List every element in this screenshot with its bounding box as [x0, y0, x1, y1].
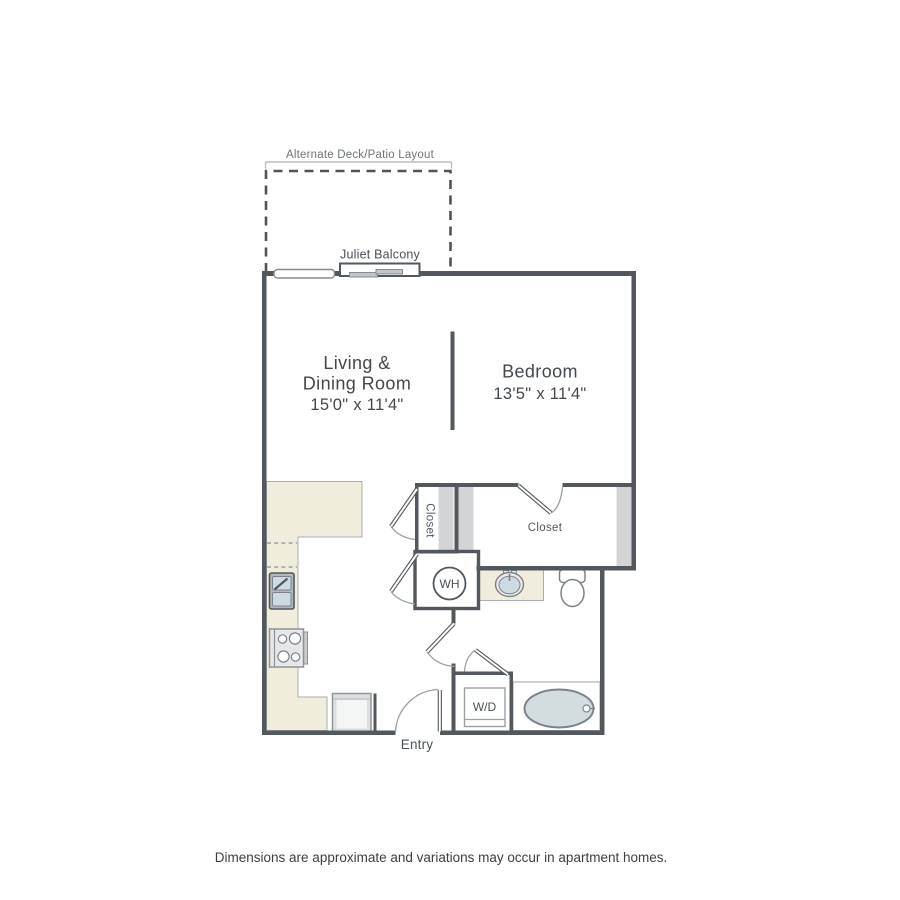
wall-right-upper [632, 271, 637, 571]
living-room-label-line1: Living & [323, 353, 390, 373]
wall-bathroom-top [477, 566, 637, 571]
bedroom-dimensions: 13'5" x 11'4" [493, 385, 586, 403]
wall-left [262, 271, 267, 735]
bathtub-icon [513, 682, 600, 731]
wall-wd-closet-right [510, 672, 514, 736]
toilet-icon [560, 570, 586, 607]
water-heater-label: WH [440, 577, 460, 591]
kitchen-sink-icon [270, 573, 295, 609]
alternate-deck-label: Alternate Deck/Patio Layout [286, 149, 435, 161]
small-closet-shelf [439, 487, 454, 550]
floorplan-page: Alternate Deck/Patio Layout [0, 0, 900, 900]
hall-door [427, 624, 455, 667]
wall-closet-divider [455, 487, 459, 553]
small-closet-door [391, 489, 417, 540]
living-room-dimensions: 15'0" x 11'4" [310, 396, 403, 414]
kitchen [267, 482, 372, 732]
large-closet-shelf-right [617, 487, 632, 566]
washer-dryer-label: W/D [473, 700, 497, 714]
window-icon [274, 270, 335, 279]
wall-closet-top-right [563, 483, 637, 487]
wall-entry-stub [374, 694, 377, 733]
bedroom-label: Bedroom [502, 362, 578, 382]
wall-right-lower [600, 566, 605, 735]
entry-door [396, 690, 440, 733]
floorplan-drawing: Alternate Deck/Patio Layout [0, 0, 900, 900]
wall-bottom-right [440, 731, 605, 736]
bedroom-closet-door [519, 486, 563, 514]
water-heater-door [391, 554, 417, 604]
entry-label: Entry [401, 737, 434, 752]
stove-icon [270, 629, 308, 667]
wall-hall-stub [452, 609, 456, 624]
bracket-ticks [266, 162, 452, 169]
sliding-door-panel-right [376, 270, 403, 275]
top-wall-openings [274, 264, 420, 279]
large-closet-label: Closet [528, 522, 563, 534]
wall-room-divider [451, 332, 455, 431]
disclaimer-text: Dimensions are approximate and variation… [215, 850, 667, 865]
refrigerator-icon [333, 694, 372, 732]
wall-small-closet-bottom [415, 550, 459, 554]
juliet-balcony-label: Juliet Balcony [340, 248, 420, 262]
wall-closet-top-left [415, 483, 519, 487]
sliding-door-panel-left [350, 273, 378, 278]
bathroom-door [465, 650, 509, 675]
living-room-label-line2: Dining Room [303, 374, 411, 394]
small-closet-label: Closet [424, 503, 436, 538]
